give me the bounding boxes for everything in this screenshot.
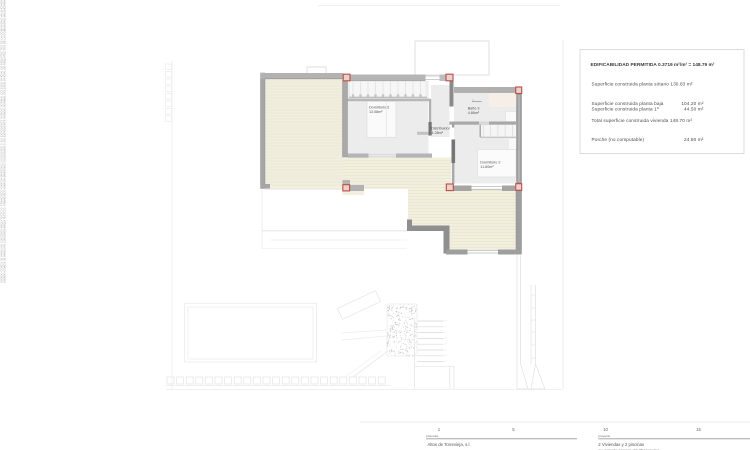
- svg-text:EDIFICABILIDAD PERMITIDA 0.371: EDIFICABILIDAD PERMITIDA 0.3719 m²/m² = …: [591, 62, 715, 68]
- svg-text:Dormitorio 3: Dormitorio 3: [369, 105, 389, 109]
- svg-text:Baño 3: Baño 3: [468, 106, 480, 110]
- svg-text:104.20 m²: 104.20 m²: [681, 101, 704, 106]
- svg-text:4.86m²: 4.86m²: [468, 111, 480, 115]
- svg-text:Dormitorio 2: Dormitorio 2: [480, 160, 500, 164]
- svg-text:Altos de Torrevieja, s.l.: Altos de Torrevieja, s.l.: [428, 442, 471, 447]
- svg-text:Superficie construida planta 1: Superficie construida planta 1ª: [592, 107, 659, 112]
- svg-text:Superficie construida planta b: Superficie construida planta baja: [592, 101, 664, 106]
- svg-text:10: 10: [603, 427, 608, 432]
- svg-text:VISADO COACV 09.04566.000 1: VISADO COACV 09.04566.000 11/05/2009 ARQ…: [0, 0, 4, 283]
- svg-text:15: 15: [696, 427, 701, 432]
- svg-text:promotor: promotor: [426, 434, 438, 438]
- svg-text:44.50 m²: 44.50 m²: [684, 107, 704, 112]
- svg-text:Total superficie construida vi: Total superficie construida vivienda 148…: [592, 118, 693, 123]
- svg-text:24.80 m²: 24.80 m²: [684, 137, 704, 142]
- svg-text:11.80m²: 11.80m²: [480, 165, 494, 169]
- svg-text:2 Viviendas y 2 piscinas: 2 Viviendas y 2 piscinas: [598, 442, 644, 447]
- svg-text:Superficie construida planta s: Superficie construida planta sótano 130.…: [592, 82, 693, 87]
- svg-text:Porche (no computable): Porche (no computable): [592, 137, 645, 142]
- svg-text:Distribuidor: Distribuidor: [431, 126, 450, 130]
- svg-text:13.08m²: 13.08m²: [369, 110, 383, 114]
- svg-text:proyecto: proyecto: [598, 434, 610, 438]
- svg-text:4.28m²: 4.28m²: [432, 131, 444, 135]
